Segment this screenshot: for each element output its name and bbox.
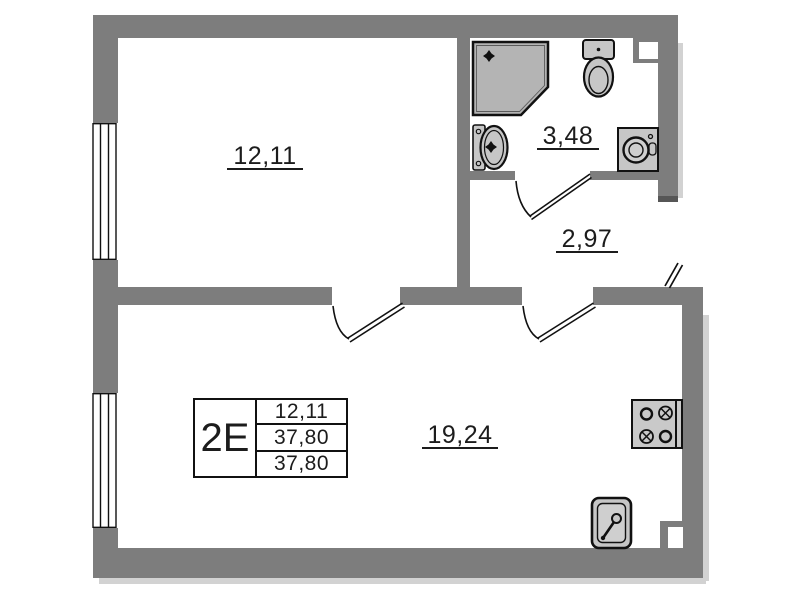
living-door-icon	[523, 303, 596, 342]
washing-machine-icon	[618, 128, 658, 171]
unit-info-box: 2E 12,11 37,80 37,80	[193, 398, 348, 478]
wall-left-upper	[93, 15, 118, 123]
bedroom-door-icon	[333, 303, 405, 342]
vent-shaft-opening	[639, 42, 658, 59]
wall-partition	[457, 38, 470, 287]
corner-duct-opening	[668, 527, 683, 548]
bedroom-area-label: 12,11	[227, 144, 303, 170]
kitchen-sink-icon	[592, 498, 631, 548]
toilet-icon	[583, 40, 614, 97]
entrance-door-icon	[665, 263, 683, 288]
unit-room-area: 12,11	[257, 400, 346, 425]
stove-icon	[632, 400, 682, 448]
shadow-bath-right	[678, 43, 683, 198]
wall-left-middle	[93, 260, 118, 393]
wall-bath-bottom-left	[470, 171, 515, 180]
wall-bottom	[93, 548, 703, 578]
unit-total-area: 37,80	[257, 452, 346, 476]
wall-top	[93, 15, 678, 38]
wash-basin-icon	[473, 125, 508, 170]
bathroom-area-label: 3,48	[537, 124, 599, 150]
entrance-door-jamb	[658, 196, 678, 202]
unit-type-label: 2E	[195, 400, 257, 476]
wall-middle-b	[400, 287, 522, 305]
wall-middle-c	[593, 287, 703, 305]
living-area-label: 19,24	[422, 423, 498, 449]
wall-right-lower	[682, 305, 703, 548]
bathroom-door-icon	[516, 174, 592, 220]
wall-bath-bottom-right	[590, 171, 658, 180]
bedroom-window-icon	[93, 123, 116, 260]
unit-living-area: 37,80	[257, 425, 346, 452]
wall-middle-a	[93, 287, 332, 305]
shadow-bottom-outer	[99, 578, 706, 584]
floor-plan: 12,11 3,48 2,97 19,24 2E 12,11 37,80 37,…	[0, 0, 799, 600]
living-window-icon	[93, 393, 116, 528]
hallway-area-label: 2,97	[556, 227, 618, 253]
shower-icon	[473, 42, 548, 115]
shadow-right-outer	[703, 315, 709, 581]
